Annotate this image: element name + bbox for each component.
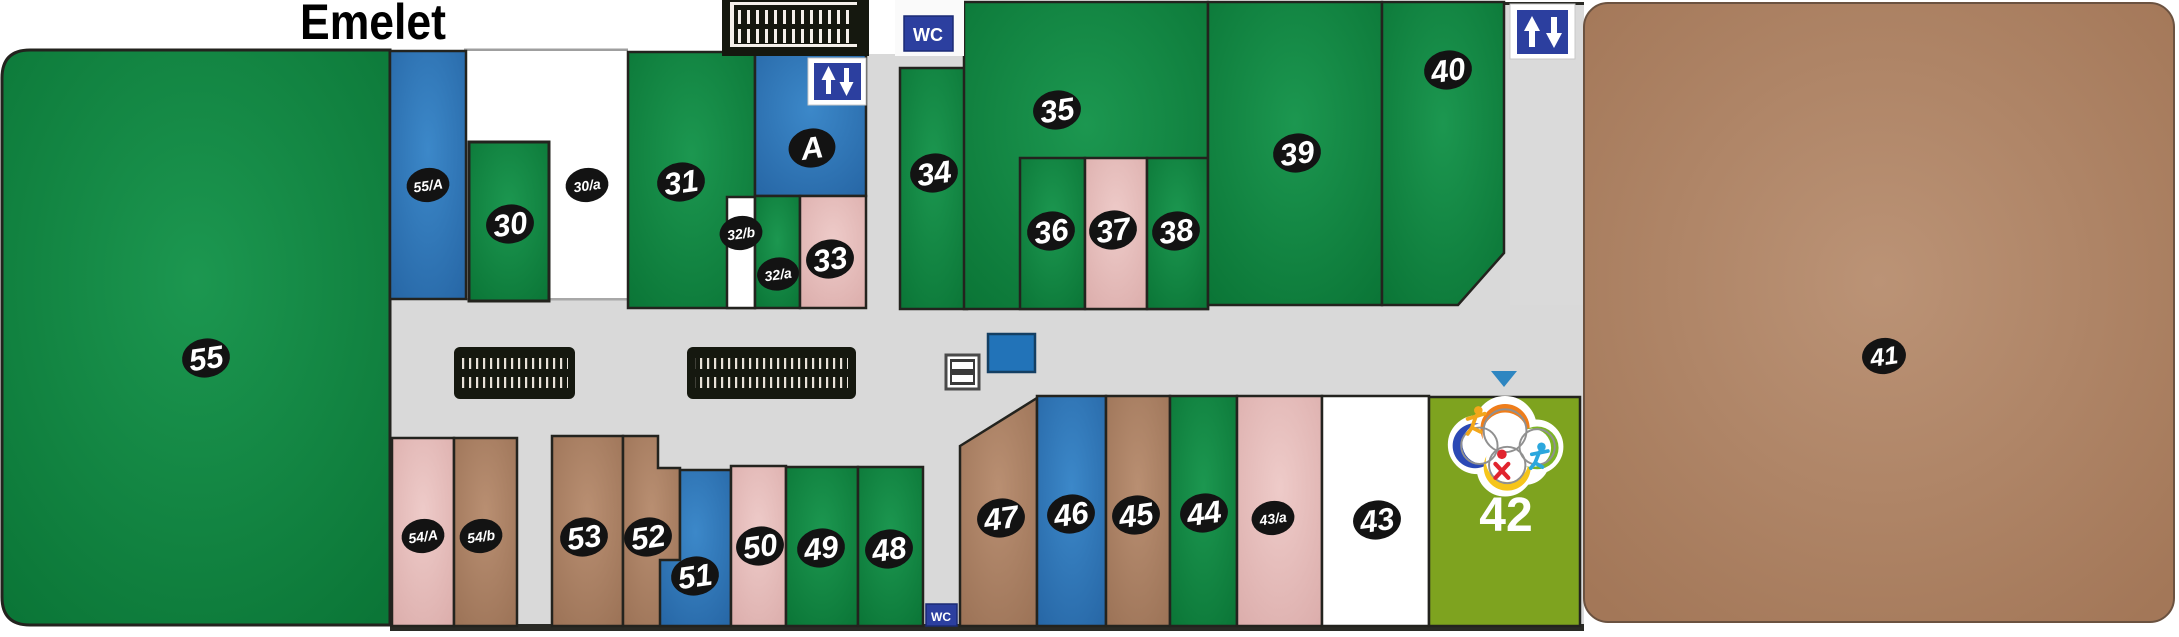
svg-text:A: A bbox=[797, 129, 825, 167]
svg-text:37: 37 bbox=[1094, 211, 1135, 251]
svg-text:41: 41 bbox=[1867, 341, 1899, 373]
svg-text:36: 36 bbox=[1032, 212, 1072, 252]
svg-text:51: 51 bbox=[676, 557, 715, 596]
svg-text:WC: WC bbox=[913, 25, 943, 45]
svg-text:48: 48 bbox=[869, 530, 910, 570]
svg-text:WC: WC bbox=[931, 610, 951, 624]
svg-text:33: 33 bbox=[811, 240, 850, 279]
svg-text:40: 40 bbox=[1428, 51, 1468, 91]
svg-text:31: 31 bbox=[662, 163, 701, 202]
svg-text:45: 45 bbox=[1116, 496, 1157, 536]
svg-text:34: 34 bbox=[915, 154, 954, 193]
svg-text:Emelet: Emelet bbox=[300, 0, 446, 50]
svg-text:49: 49 bbox=[801, 529, 842, 569]
svg-text:47: 47 bbox=[981, 499, 1023, 539]
svg-text:46: 46 bbox=[1051, 495, 1092, 535]
svg-text:43: 43 bbox=[1357, 501, 1397, 541]
svg-text:50: 50 bbox=[741, 527, 780, 566]
svg-text:35: 35 bbox=[1038, 91, 1078, 131]
svg-text:42: 42 bbox=[1479, 489, 1532, 542]
svg-text:53: 53 bbox=[565, 518, 604, 557]
svg-text:39: 39 bbox=[1278, 134, 1318, 174]
svg-text:38: 38 bbox=[1157, 212, 1197, 252]
svg-text:55: 55 bbox=[187, 339, 227, 379]
svg-text:52: 52 bbox=[629, 518, 668, 557]
svg-text:30: 30 bbox=[491, 205, 530, 244]
svg-text:44: 44 bbox=[1184, 494, 1224, 534]
